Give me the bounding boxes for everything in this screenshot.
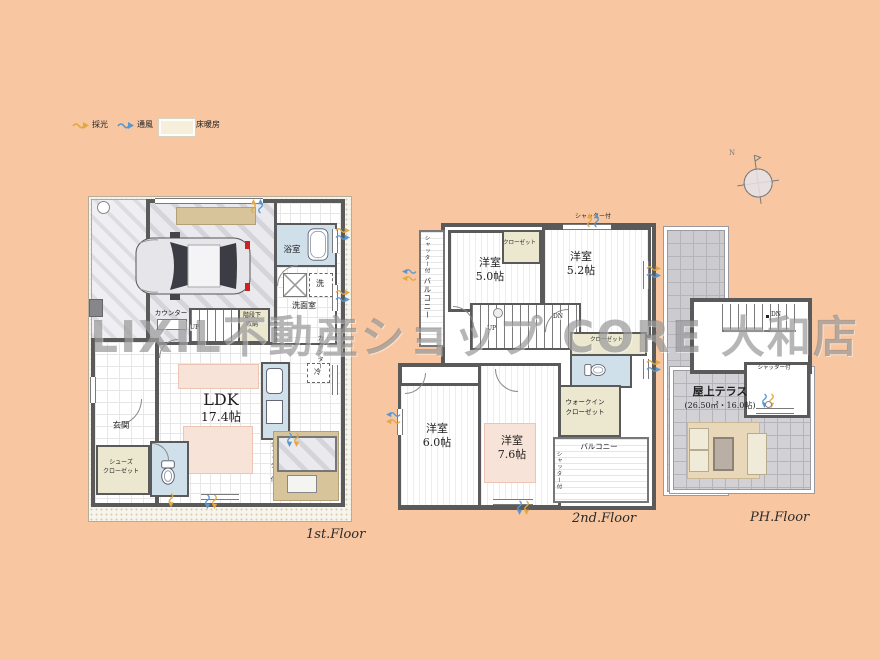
shoes-closet-label-line2: クローゼット [98,468,144,475]
room-label-60-size: 6.0帖 [401,437,473,450]
airflow-arrow-icon [593,212,600,228]
airflow-arrow-icon [385,411,401,418]
manhole [97,201,110,214]
room-label-60: 洋室 [401,423,473,436]
daylight-airflow-arrows [385,411,401,425]
compass-north-label: N [729,149,735,157]
window [90,377,96,403]
daylight-arrow-icon [72,121,90,130]
garage-door [155,198,263,204]
car-icon [134,229,253,303]
terrace-size-label: (26.50㎡・16.0帖) [676,401,764,410]
daylight-airflow-arrows [204,494,218,510]
floor-heating-swatch [159,119,195,136]
toilet-icon-1f [159,459,177,486]
room-label-76: 洋室 [481,435,543,448]
airflow-arrow-icon [401,268,417,275]
floor-heating-area-2 [183,426,253,474]
shutter-label-ph: シャッター付 [746,365,802,371]
terrace-label: 屋上テラス [684,386,756,399]
floor-label-ph: PH.Floor [750,510,809,525]
room-label-ldk: LDK [181,391,261,410]
compass-icon [735,150,781,206]
floor-label-1f: 1st.Floor [306,527,365,542]
daylight-arrow-icon [401,275,417,282]
outdoor-chair [689,450,709,472]
garden-table [287,475,317,493]
airflow-arrow-icon [117,121,135,130]
daylight-airflow-arrows [250,198,264,214]
closet-a-label: クローゼット [502,240,537,246]
room-label-washer: 洗 [311,279,329,288]
outdoor-chair [689,428,709,450]
legend-ventilation-label: 通風 [137,120,153,129]
airflow-arrow-icon [257,198,264,214]
room-label-bath: 浴室 [275,245,309,255]
watermark: LIXIL不動産ショップ CORE 大和店 [90,301,859,365]
wic-label-line1: ウォークイン [553,399,617,407]
daylight-arrow-icon [250,198,257,214]
daylight-arrow-icon [335,227,351,234]
door-knob [765,401,772,408]
daylight-airflow-arrows [516,500,530,516]
daylight-arrow-icon [168,493,175,509]
window [332,365,338,395]
kitchen-sink-icon [266,368,283,394]
wic-label-line2: クローゼット [553,409,617,417]
outdoor-table [713,437,734,471]
daylight-arrow-icon [523,500,530,516]
shoes-closet-label-line1: シューズ [98,459,144,466]
floor-heating-area-1 [178,364,259,389]
stove-icon [266,400,283,424]
airflow-arrow-icon [204,494,211,510]
floor-label-2f: 2nd.Floor [572,511,636,526]
room-label-50-size: 5.0帖 [452,271,528,284]
legend-floor-heating-label: 床暖房 [196,120,220,129]
room-label-76-size: 7.6帖 [481,449,543,462]
legend-lighting-label: 採光 [92,120,108,129]
daylight-airflow-arrows [286,432,300,448]
airflow-arrow-icon [335,234,351,241]
daylight-airflow-arrows [401,268,417,282]
room-label-52: 洋室 [543,251,619,264]
shutter-label-balcony-left: シャッター付 [423,235,429,274]
room-label-50: 洋室 [452,257,528,270]
daylight-arrow-icon [335,289,351,296]
shutter-label-balcony-right: シャッター付 [555,451,561,490]
daylight-arrow-icon [586,212,593,228]
outdoor-sofa [747,433,767,475]
daylight-arrow-icon [385,418,401,425]
balcony-right-label: バルコニー [567,443,631,452]
room-label-52-size: 5.2帖 [543,265,619,278]
airflow-arrow-icon [286,432,293,448]
daylight-airflow-arrows [335,227,351,241]
floorplan-canvas: 採光 通風 床暖房 N [0,0,880,660]
daylight-airflow-arrows [586,212,600,228]
room-label-ldk-size: 17.4帖 [181,410,261,425]
daylight-arrow-icon [293,432,300,448]
daylight-arrow-icon [211,494,218,510]
garage-canopy [176,207,256,225]
daylight-arrow [168,493,175,509]
airflow-arrow-icon [516,500,523,516]
